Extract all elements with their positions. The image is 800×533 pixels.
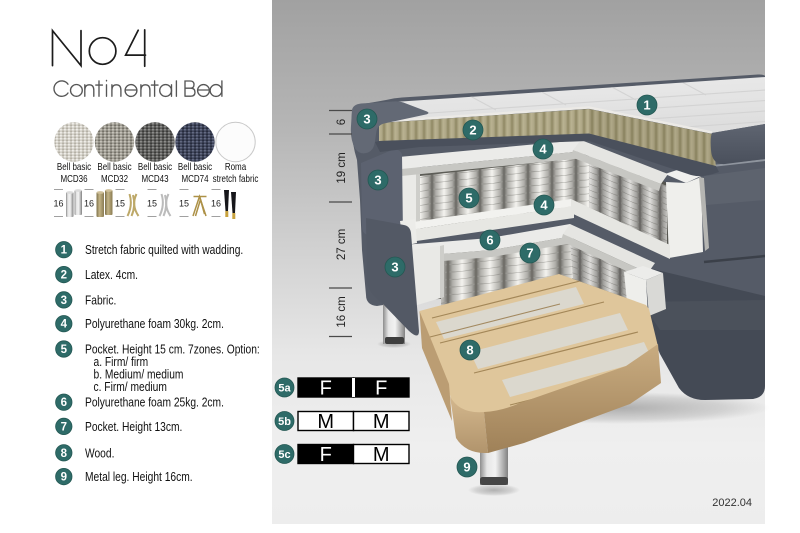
svg-text:5: 5 (61, 344, 68, 356)
svg-text:F: F (320, 378, 332, 400)
svg-text:16: 16 (211, 199, 221, 209)
svg-text:Bell basic: Bell basic (178, 161, 213, 172)
svg-text:6: 6 (61, 397, 67, 409)
svg-text:4: 4 (61, 319, 68, 331)
svg-text:Polyurethane foam 25kg. 2cm.: Polyurethane foam 25kg. 2cm. (85, 397, 224, 410)
svg-text:3: 3 (363, 112, 370, 127)
svg-text:9: 9 (61, 472, 67, 484)
svg-text:2: 2 (61, 270, 67, 282)
svg-text:Bell basic: Bell basic (57, 161, 92, 172)
svg-text:27 cm: 27 cm (336, 229, 348, 260)
svg-text:Stretch fabric quilted with wa: Stretch fabric quilted with wadding. (85, 244, 243, 257)
svg-text:19 cm: 19 cm (336, 152, 348, 183)
svg-text:Roma: Roma (225, 161, 247, 172)
svg-text:4: 4 (540, 198, 548, 213)
svg-text:Pocket. Height 15 cm. 7zones.: Pocket. Height 15 cm. 7zones. Option: (85, 344, 260, 357)
svg-text:M: M (373, 411, 390, 433)
svg-text:M: M (373, 444, 390, 466)
svg-text:6: 6 (336, 119, 348, 125)
svg-text:16: 16 (53, 199, 63, 209)
svg-text:MCD32: MCD32 (101, 173, 128, 184)
svg-text:MCD43: MCD43 (141, 173, 168, 184)
svg-text:MCD74: MCD74 (181, 173, 208, 184)
svg-text:9: 9 (463, 460, 470, 475)
svg-text:4: 4 (539, 142, 547, 157)
svg-text:Bell basic: Bell basic (97, 161, 132, 172)
svg-text:a. Firm/ firm: a. Firm/ firm (94, 356, 149, 369)
svg-text:c. Firm/ medium: c. Firm/ medium (94, 381, 167, 394)
svg-text:15: 15 (115, 199, 125, 209)
svg-text:MCD36: MCD36 (60, 173, 87, 184)
svg-text:15: 15 (179, 199, 189, 209)
svg-text:Latex. 4cm.: Latex. 4cm. (85, 269, 138, 282)
svg-text:M: M (317, 411, 334, 433)
svg-text:Bell basic: Bell basic (138, 161, 173, 172)
svg-text:3: 3 (374, 173, 381, 188)
svg-text:b. Medium/ medium: b. Medium/ medium (94, 369, 184, 382)
svg-text:Wood.: Wood. (85, 447, 114, 460)
svg-text:5b: 5b (278, 416, 291, 428)
svg-text:F: F (320, 444, 332, 466)
svg-text:2: 2 (469, 123, 476, 138)
svg-text:7: 7 (61, 421, 67, 433)
svg-text:Metal leg. Height 16cm.: Metal leg. Height 16cm. (85, 471, 193, 484)
svg-text:F: F (375, 378, 387, 400)
svg-text:16: 16 (84, 199, 94, 209)
svg-text:5a: 5a (278, 382, 291, 394)
svg-text:8: 8 (61, 448, 68, 460)
svg-text:Pocket. Height 13cm.: Pocket. Height 13cm. (85, 421, 182, 434)
svg-text:1: 1 (643, 98, 650, 113)
svg-text:Fabric.: Fabric. (85, 295, 116, 308)
svg-text:5: 5 (465, 191, 472, 206)
svg-text:1: 1 (61, 245, 68, 257)
svg-text:Polyurethane foam 30kg. 2cm.: Polyurethane foam 30kg. 2cm. (85, 318, 224, 331)
svg-text:2022.04: 2022.04 (712, 497, 752, 509)
svg-text:15: 15 (147, 199, 157, 209)
svg-text:16 cm: 16 cm (336, 296, 348, 327)
svg-text:stretch fabric: stretch fabric (213, 173, 259, 184)
svg-text:5c: 5c (278, 449, 290, 461)
svg-text:3: 3 (61, 295, 67, 307)
svg-text:3: 3 (391, 260, 398, 275)
svg-text:8: 8 (466, 343, 473, 358)
svg-text:7: 7 (526, 246, 533, 261)
svg-text:6: 6 (486, 233, 493, 248)
